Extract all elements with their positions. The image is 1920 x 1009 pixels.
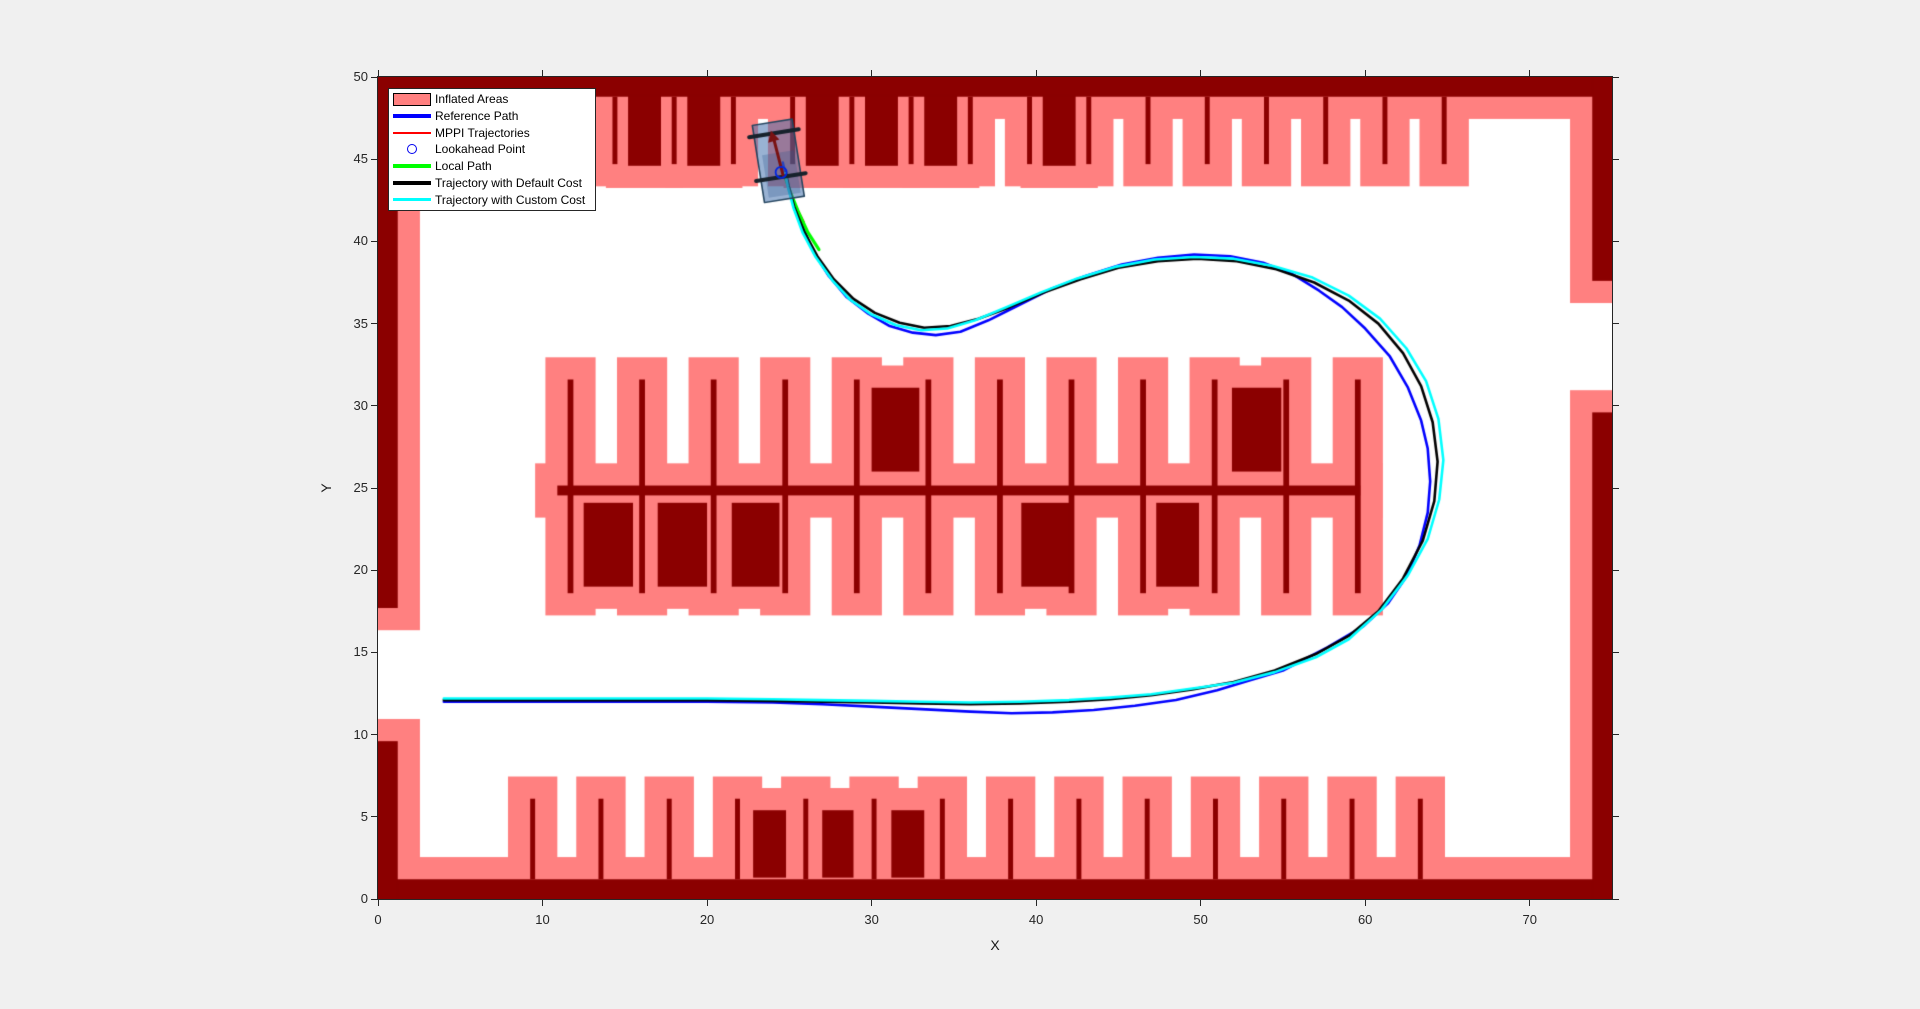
y-tick — [1612, 241, 1619, 242]
legend-box[interactable]: Inflated AreasReference PathMPPI Traject… — [388, 88, 596, 211]
legend-item-lookahead-point: Lookahead Point — [389, 142, 595, 157]
legend-label: Reference Path — [435, 109, 518, 123]
legend-label: Lookahead Point — [435, 142, 525, 156]
x-tick-label: 40 — [1016, 912, 1056, 927]
y-tick-label: 15 — [322, 644, 368, 659]
legend-swatch-graphic — [393, 93, 431, 106]
y-tick — [371, 652, 378, 653]
x-tick-label: 10 — [523, 912, 563, 927]
x-tick — [1200, 899, 1201, 906]
y-tick-label: 0 — [322, 891, 368, 906]
y-axis-label: Y — [318, 483, 334, 492]
x-tick-label: 50 — [1181, 912, 1221, 927]
legend-item-inflated-areas: Inflated Areas — [389, 92, 595, 107]
y-tick — [1612, 570, 1619, 571]
y-tick — [371, 159, 378, 160]
y-tick-label: 35 — [322, 316, 368, 331]
x-tick — [542, 70, 543, 77]
y-tick — [1612, 323, 1619, 324]
x-tick — [1365, 70, 1366, 77]
x-tick-label: 20 — [687, 912, 727, 927]
matlab-figure-window: 01020304050607005101520253035404550 X Y … — [0, 0, 1920, 1009]
x-tick — [707, 70, 708, 77]
legend-swatch-graphic — [393, 164, 431, 168]
legend-swatch-graphic — [393, 114, 431, 118]
y-tick — [1612, 405, 1619, 406]
x-tick — [1036, 70, 1037, 77]
y-tick — [371, 405, 378, 406]
legend-item-local-path: Local Path — [389, 159, 595, 174]
y-tick — [371, 570, 378, 571]
legend-swatch-graphic — [407, 144, 417, 154]
x-tick-label: 30 — [852, 912, 892, 927]
y-tick-label: 40 — [322, 233, 368, 248]
legend-item-mppi-trajectories: MPPI Trajectories — [389, 125, 595, 140]
legend-swatch-graphic — [393, 132, 431, 134]
line-swatch-icon — [389, 164, 435, 168]
legend-label: Trajectory with Default Cost — [435, 176, 582, 190]
x-tick — [871, 899, 872, 906]
x-tick — [1365, 899, 1366, 906]
y-tick — [371, 323, 378, 324]
x-tick — [707, 899, 708, 906]
y-tick-label: 5 — [322, 809, 368, 824]
y-tick — [1612, 734, 1619, 735]
x-tick — [1529, 899, 1530, 906]
legend-label: MPPI Trajectories — [435, 126, 530, 140]
legend-item-reference-path: Reference Path — [389, 109, 595, 124]
y-tick-label: 20 — [322, 562, 368, 577]
y-tick — [1612, 652, 1619, 653]
y-tick — [1612, 816, 1619, 817]
legend-swatch-graphic — [393, 198, 431, 202]
line-swatch-icon — [389, 132, 435, 134]
legend-label: Trajectory with Custom Cost — [435, 193, 585, 207]
x-tick — [542, 899, 543, 906]
x-tick-label: 60 — [1345, 912, 1385, 927]
line-swatch-icon — [389, 198, 435, 202]
legend-swatch-graphic — [393, 181, 431, 185]
x-tick — [378, 899, 379, 906]
y-tick-label: 30 — [322, 398, 368, 413]
y-tick-label: 10 — [322, 727, 368, 742]
line-swatch-icon — [389, 114, 435, 118]
y-tick — [1612, 488, 1619, 489]
x-axis-label: X — [378, 937, 1612, 953]
y-tick — [371, 816, 378, 817]
legend-item-trajectory-with-default-cost: Trajectory with Default Cost — [389, 175, 595, 190]
x-tick-label: 0 — [358, 912, 398, 927]
y-tick — [371, 734, 378, 735]
y-tick — [1612, 899, 1619, 900]
x-tick — [1529, 70, 1530, 77]
plot-area: 01020304050607005101520253035404550 X Y … — [378, 77, 1612, 899]
y-tick — [1612, 77, 1619, 78]
legend-label: Inflated Areas — [435, 92, 508, 106]
y-tick — [371, 899, 378, 900]
y-tick — [371, 241, 378, 242]
x-tick — [1200, 70, 1201, 77]
lookahead-circle-icon — [389, 144, 435, 154]
legend-item-trajectory-with-custom-cost: Trajectory with Custom Cost — [389, 192, 595, 207]
y-tick — [371, 488, 378, 489]
y-tick-label: 50 — [322, 69, 368, 84]
y-tick-label: 45 — [322, 151, 368, 166]
line-swatch-icon — [389, 181, 435, 185]
y-tick — [1612, 159, 1619, 160]
x-tick — [871, 70, 872, 77]
inflated-areas-swatch-icon — [389, 93, 435, 106]
x-tick — [1036, 899, 1037, 906]
y-tick — [371, 77, 378, 78]
x-tick-label: 70 — [1510, 912, 1550, 927]
legend-label: Local Path — [435, 159, 492, 173]
